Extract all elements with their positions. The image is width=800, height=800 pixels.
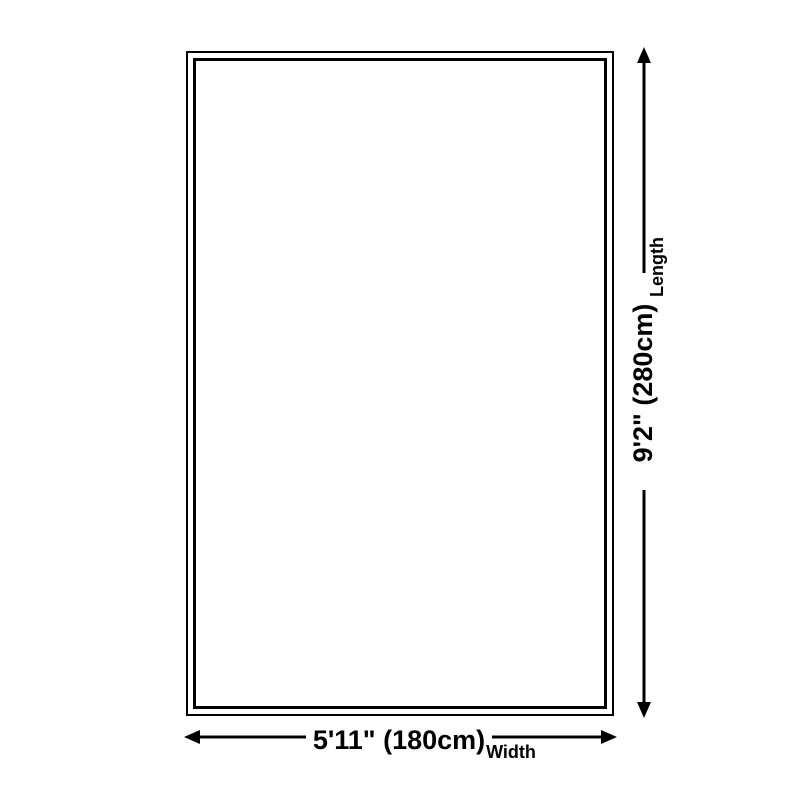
width-arrow-head-right-icon [601, 730, 617, 744]
length-arrow-head-up-icon [637, 47, 651, 63]
width-arrow-head-left-icon [184, 730, 200, 744]
dimension-diagram: 9'2" (280cm) Length 5'11" (180cm) Width [0, 0, 800, 800]
length-dimension-label: Length [647, 227, 667, 307]
length-arrow-head-down-icon [637, 702, 651, 718]
dimension-arrows [0, 0, 800, 800]
width-dimension-label: Width [476, 743, 546, 761]
